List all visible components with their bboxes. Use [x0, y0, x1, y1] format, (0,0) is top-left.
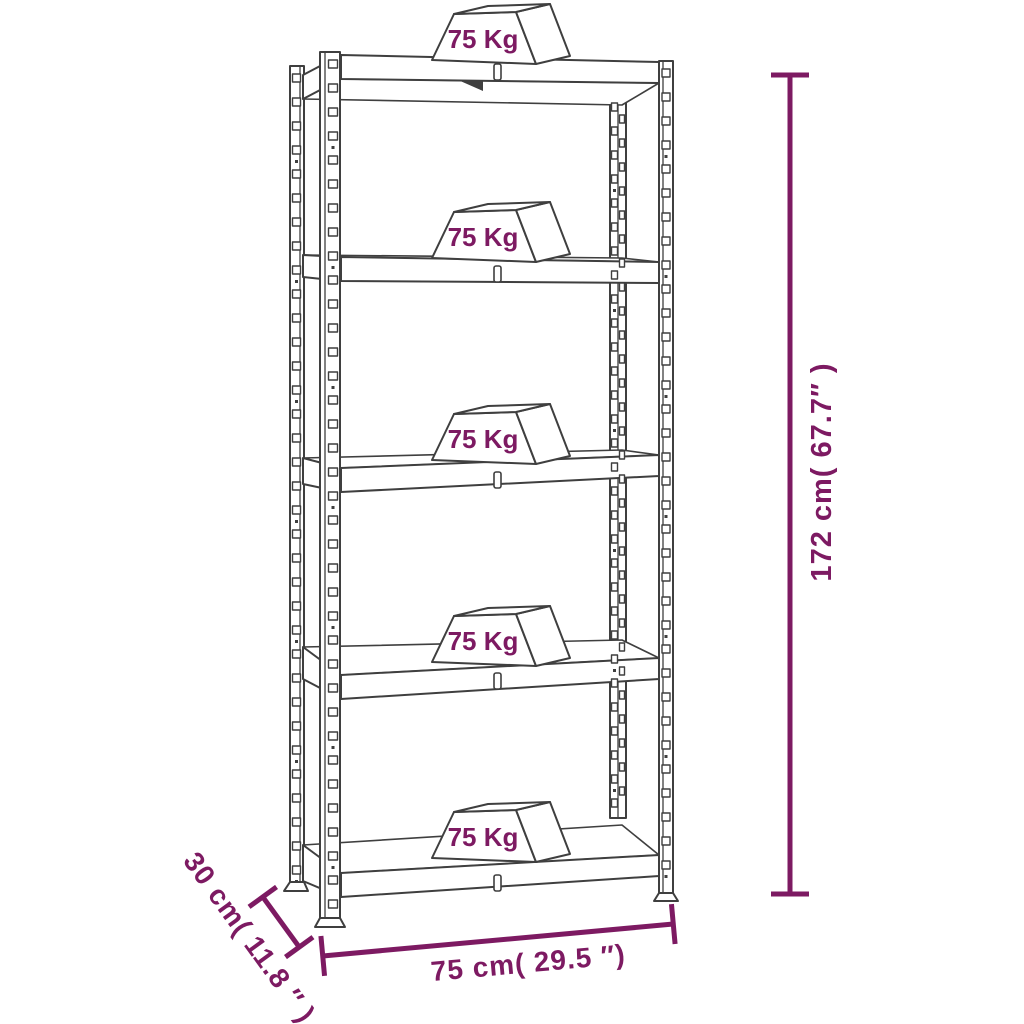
diagram-canvas: 75 Kg75 Kg75 Kg75 Kg75 Kg 172 cm( 67.7″ … [0, 0, 1024, 1024]
weight-labels: 75 Kg75 Kg75 Kg75 Kg75 Kg [448, 24, 519, 852]
dimension-end-cap-right [285, 937, 313, 957]
post-foot [654, 893, 678, 901]
post-body [290, 66, 304, 882]
height-dimension-label: 172 cm( 67.7″ ) [806, 362, 838, 581]
post-foot [284, 882, 308, 891]
weight-label: 75 Kg [448, 222, 519, 252]
shelf-center-slot [494, 266, 501, 282]
dimension-end-cap-right [671, 904, 675, 944]
weight-label: 75 Kg [448, 626, 519, 656]
weight-label: 75 Kg [448, 424, 519, 454]
post-foot [315, 918, 345, 927]
shelf-center-slot [494, 875, 501, 891]
width-dimension: 75 cm( 29.5 ″) [321, 904, 677, 997]
rack-drawing [284, 4, 678, 927]
dimension-end-cap-left [249, 887, 277, 907]
height-dimension: 172 cm( 67.7″ ) [771, 75, 838, 894]
shelf-center-slot [494, 673, 501, 689]
weight-label: 75 Kg [448, 24, 519, 54]
dimension-end-cap-left [321, 936, 325, 976]
weight-label: 75 Kg [448, 822, 519, 852]
shelf-center-slot [494, 64, 501, 80]
product-dimension-diagram: 75 Kg75 Kg75 Kg75 Kg75 Kg 172 cm( 67.7″ … [0, 0, 1024, 1024]
shelf-center-slot [494, 472, 501, 488]
